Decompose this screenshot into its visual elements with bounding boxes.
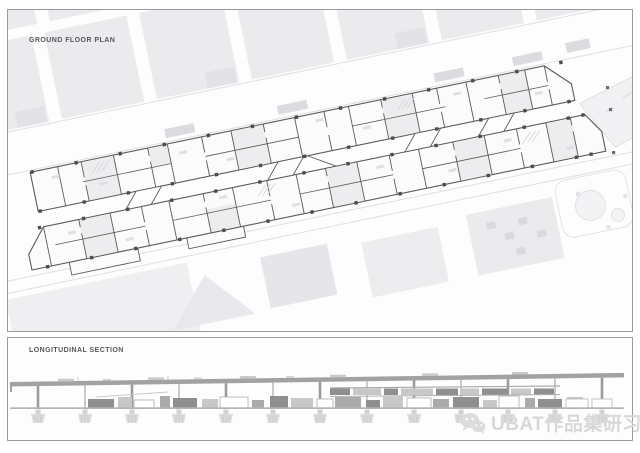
presentation-board: GROUND FLOOR PLAN LONGITUDINAL SECTION U… [0, 0, 640, 453]
wechat-icon [460, 412, 486, 434]
watermark-text: UBAT作品集研习社 [491, 409, 640, 436]
plan-title: GROUND FLOOR PLAN [29, 37, 115, 44]
ground-floor-plan-panel: GROUND FLOOR PLAN [7, 9, 633, 332]
section-title: LONGITUDINAL SECTION [29, 347, 124, 354]
ground-floor-plan-drawing [8, 10, 632, 331]
watermark: UBAT作品集研习社 [460, 409, 640, 436]
